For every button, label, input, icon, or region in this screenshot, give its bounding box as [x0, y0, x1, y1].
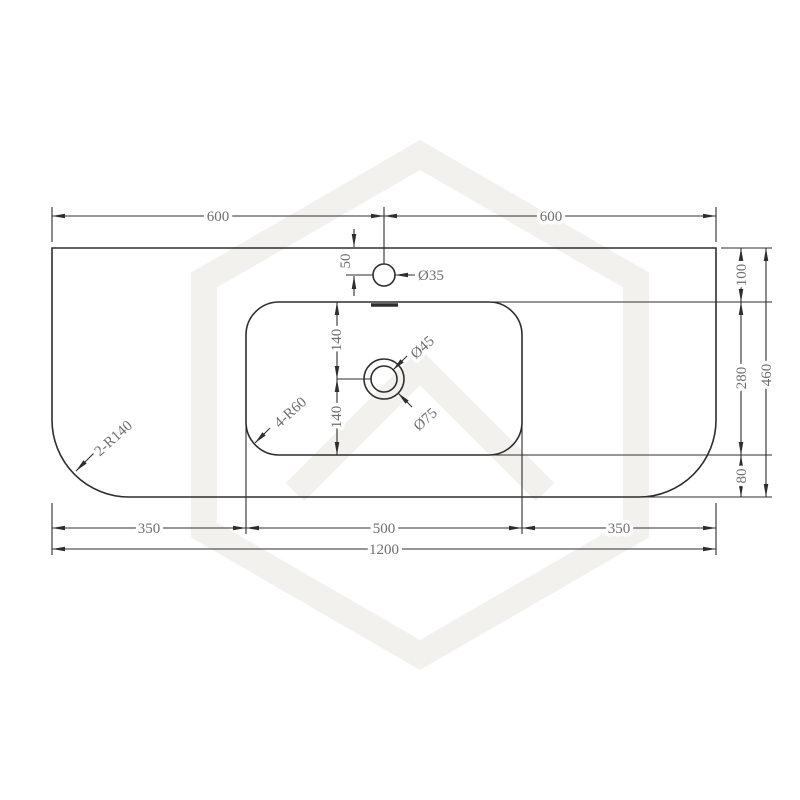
dim-label-top-right: 600: [540, 209, 563, 225]
vanity-top-dimension-drawing: 600 600 50 140 140 100 280 80 460 350 50…: [0, 0, 800, 800]
counter-radius-leader: [76, 453, 94, 471]
dim-label-bottom-right: 350: [608, 521, 631, 537]
dim-label-tap-offset: 50: [338, 254, 354, 269]
callout-drain-outer-diameter: Ø75: [411, 405, 441, 434]
callout-tap-hole-diameter: Ø35: [418, 268, 444, 284]
dim-label-right-overall: 460: [759, 364, 775, 387]
dim-label-right-bottom: 80: [734, 469, 750, 484]
callout-counter-corner-radius: 2-R140: [92, 418, 136, 460]
dim-label-bottom-left: 350: [138, 521, 161, 537]
watermark-logo: [204, 155, 636, 655]
dim-label-right-top: 100: [734, 264, 750, 287]
dim-label-bottom-center: 500: [373, 521, 396, 537]
technical-drawing-page: 600 600 50 140 140 100 280 80 460 350 50…: [0, 0, 800, 800]
dim-label-basin-lower: 140: [329, 406, 345, 429]
tap-hole: [373, 264, 395, 286]
dim-label-basin-upper: 140: [329, 329, 345, 352]
dim-label-right-middle: 280: [734, 367, 750, 390]
object-outlines: [52, 248, 716, 497]
callout-basin-corner-radius: 4-R60: [271, 394, 310, 431]
basin-radius-leader: [255, 428, 270, 443]
dim-label-top-left: 600: [207, 209, 230, 225]
dim-label-bottom-overall: 1200: [369, 542, 399, 558]
